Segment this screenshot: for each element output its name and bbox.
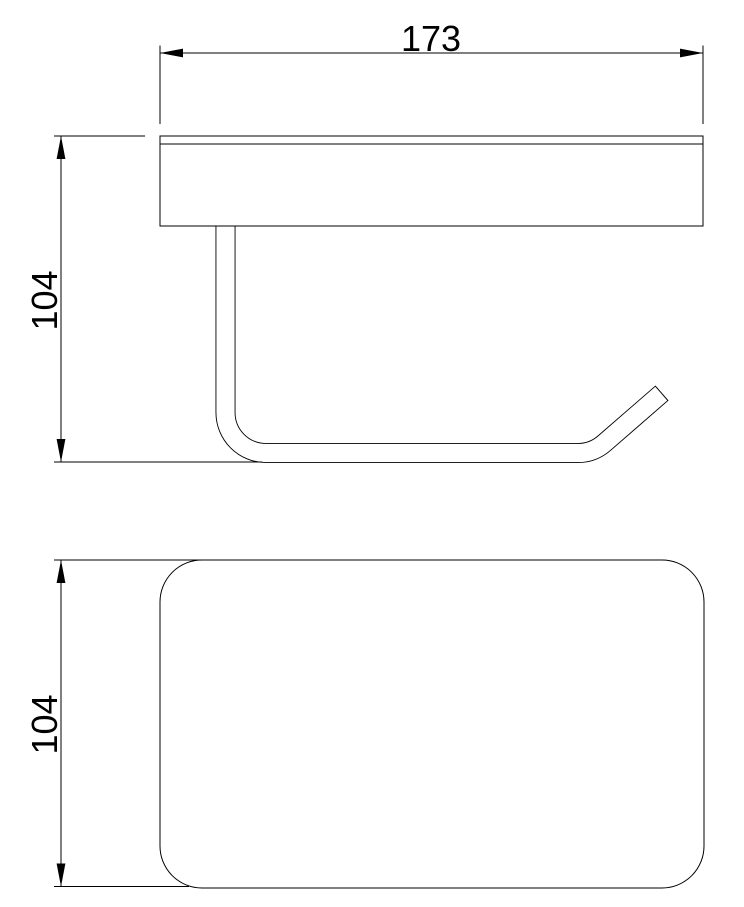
svg-text:173: 173	[401, 18, 461, 59]
svg-text:104: 104	[24, 694, 65, 754]
svg-text:104: 104	[24, 270, 65, 330]
